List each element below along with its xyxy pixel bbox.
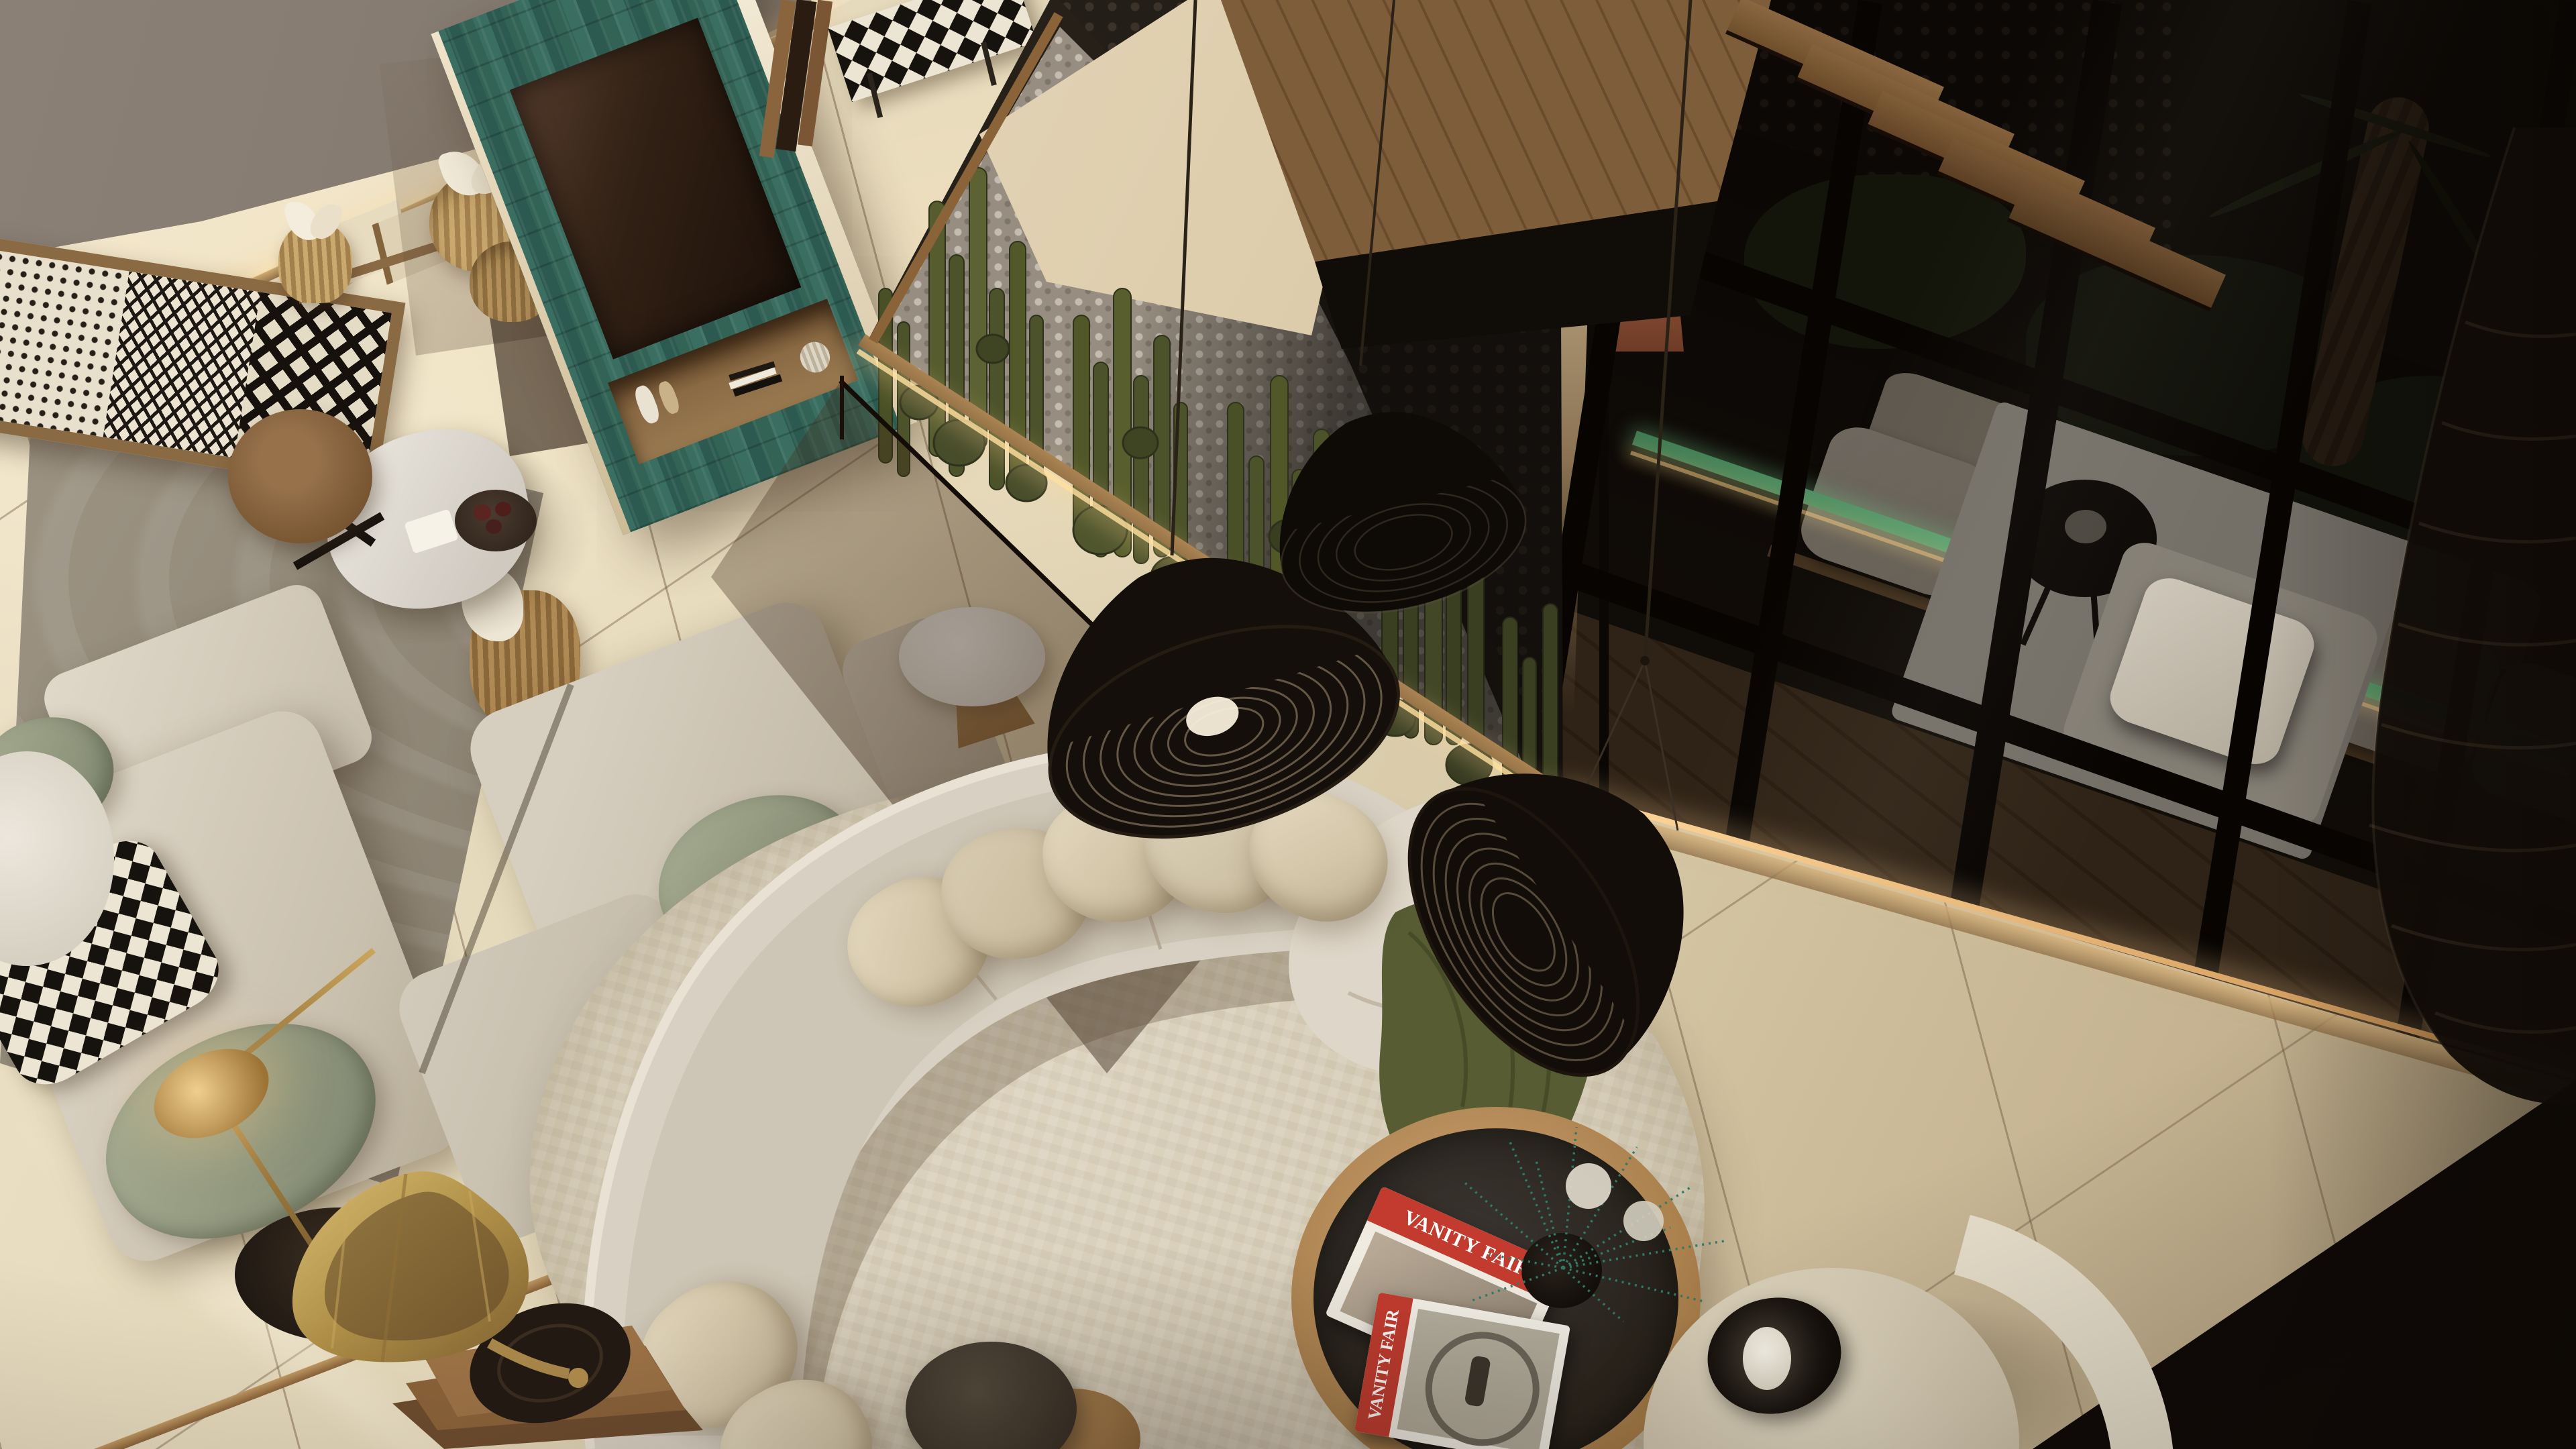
cable-hook <box>1640 656 1650 665</box>
pendant-lamp-mid <box>1363 706 1752 1115</box>
foreground-pendant-cone <box>2334 121 2576 1114</box>
living-room-aerial-render: VANITY FAIR VANITY FAIR <box>0 0 2576 1449</box>
pendant-lamps <box>0 0 2576 1449</box>
